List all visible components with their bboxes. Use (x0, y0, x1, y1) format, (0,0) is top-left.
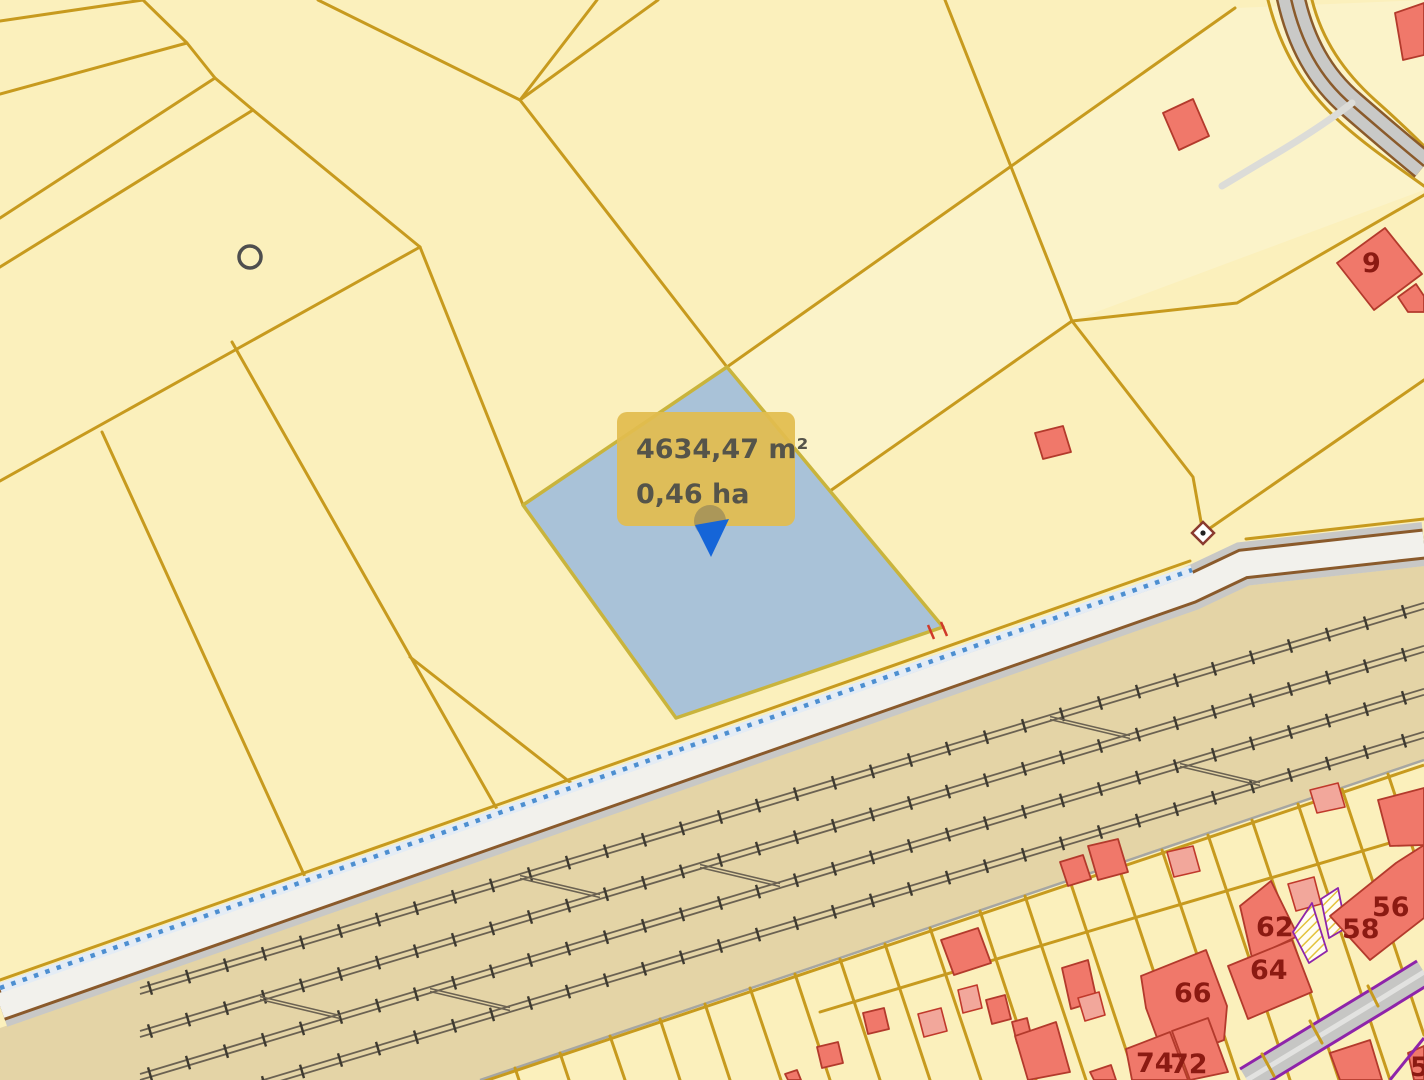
house-number-64: 64 (1250, 955, 1288, 986)
house-number-72: 72 (1170, 1049, 1208, 1080)
house-number-74: 74 (1136, 1048, 1174, 1079)
area-m2-label: 4634,47 m² (636, 434, 808, 465)
house-number-58: 58 (1342, 914, 1380, 945)
area-ha-label: 0,46 ha (636, 479, 749, 510)
house-number-9: 9 (1362, 248, 1381, 279)
house-number-62: 62 (1256, 912, 1294, 943)
map-viewport[interactable]: 9 56 58 62 64 66 74 72 5 4634,47 m² 0,46… (0, 0, 1424, 1080)
house-number-5: 5 (1410, 1052, 1424, 1080)
map-canvas[interactable]: 9 56 58 62 64 66 74 72 5 4634,47 m² 0,46… (0, 0, 1424, 1080)
house-number-66: 66 (1174, 978, 1212, 1009)
